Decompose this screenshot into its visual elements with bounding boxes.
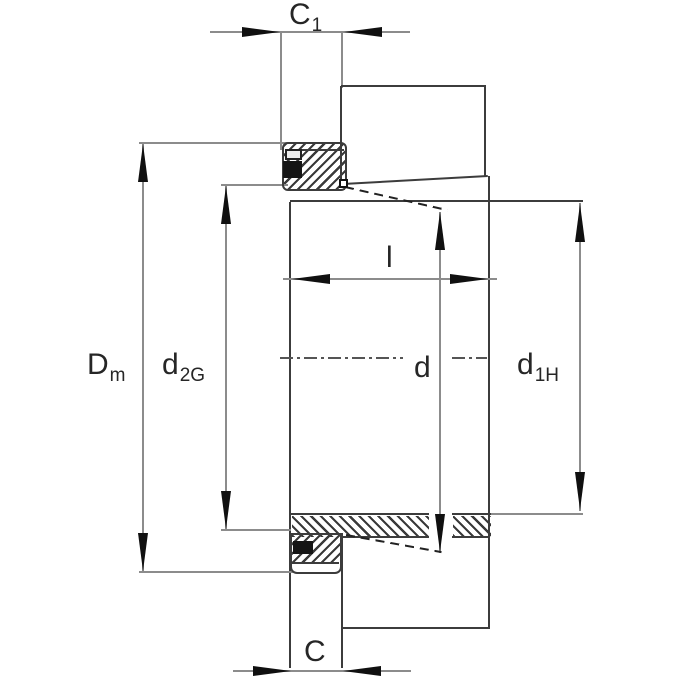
dim-label-d-main: d [414,351,431,384]
dm-arrow-top [138,144,148,182]
dim-label-l: l [386,243,393,273]
sleeve-right-face [488,176,490,628]
band-left-top-edge [291,513,429,515]
c1-extension-left [280,32,282,150]
top-lockwasher-section [283,161,302,178]
dim-label-dm-subscript: m [110,365,126,386]
dim-label-d2g-main: d [162,348,179,381]
dim-label-d2g: d2G [162,350,205,380]
dim-label-c-main: C [304,635,326,668]
band-right-bottom-edge [452,536,490,538]
c1-arrow-left [242,27,280,37]
dim-label-c1-subscript: 1 [312,15,323,36]
d1h-extension-bottom [490,513,583,515]
bearing-top-right-edge [484,86,486,177]
c1-arrow-right [344,27,382,37]
d2g-arrow-top [221,186,231,224]
taper-surface-top [343,175,488,185]
bore-line-and-d1h-ext [290,200,583,202]
dim-label-d2g-subscript: 2G [180,365,205,386]
dm-extension-bottom [139,571,294,573]
d-arrow-top [435,212,445,250]
d1h-dimension-line [579,203,581,511]
dim-label-d1h: d1H [517,350,559,380]
dim-label-c: C [304,637,326,667]
d1h-arrow-bottom [575,472,585,510]
d2g-dimension-line [225,185,227,530]
dim-label-c1: C1 [289,0,322,30]
dim-label-l-main: l [386,241,393,274]
dim-label-d1h-subscript: 1H [535,365,559,386]
l-arrow-right [450,274,488,284]
centerline-left [280,357,403,359]
dm-dimension-line [142,143,144,572]
bearing-bottom-bottom-edge [343,627,490,629]
bottom-lockwasher-section [293,541,313,554]
dim-label-d: d [414,353,431,383]
d-arrow-bottom [435,514,445,552]
d-dimension-line [439,212,441,553]
dim-label-d1h-main: d [517,348,534,381]
dm-extension-top [139,142,288,144]
l-arrow-left [292,274,330,284]
slit-projection-top [345,186,447,211]
top-lockwasher-tab [285,149,302,160]
d2g-extension-top [221,184,288,186]
centerline-right [452,357,487,359]
dim-label-dm-main: D [87,348,109,381]
thread-corner-marker [339,179,348,188]
c1-extension-right [341,32,343,88]
dm-arrow-bottom [138,533,148,571]
d1h-arrow-top [575,204,585,242]
c-arrow-left [253,666,291,676]
bearing-top-top-edge [341,85,486,87]
sleeve-band-right-hatch [453,516,491,537]
c-arrow-right [343,666,381,676]
dim-label-dm: Dm [87,350,126,380]
sleeve-left-face [289,202,291,668]
dim-label-c1-main: C [289,0,311,31]
technical-drawing-canvas: C1Dmd2Gldd1HC [0,0,680,680]
d2g-extension-bottom [221,529,291,531]
band-right-top-edge [452,513,491,515]
d2g-arrow-bottom [221,491,231,529]
